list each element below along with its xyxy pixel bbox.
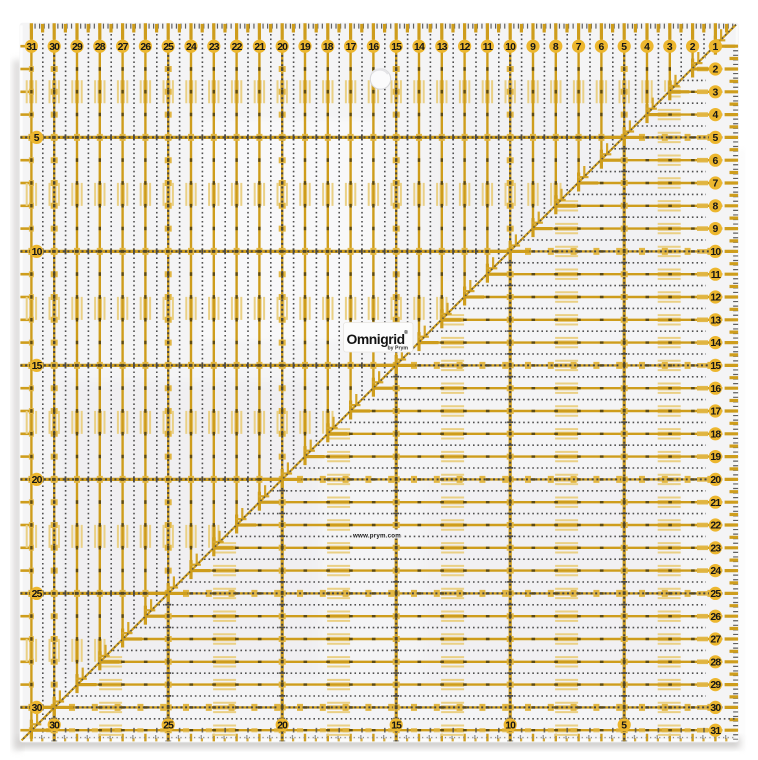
svg-text:9: 9 [713, 224, 719, 235]
svg-text:8: 8 [713, 201, 719, 212]
svg-text:28: 28 [710, 657, 721, 668]
svg-text:1: 1 [713, 42, 719, 53]
svg-text:29: 29 [710, 680, 721, 691]
svg-text:27: 27 [710, 635, 721, 646]
svg-text:26: 26 [140, 42, 151, 53]
svg-text:15: 15 [32, 361, 43, 372]
svg-text:2: 2 [690, 42, 696, 53]
svg-text:21: 21 [254, 42, 265, 53]
svg-text:16: 16 [710, 384, 721, 395]
svg-text:19: 19 [710, 452, 721, 463]
svg-text:25: 25 [710, 589, 721, 600]
svg-text:7: 7 [576, 42, 582, 53]
svg-text:28: 28 [95, 42, 106, 53]
svg-text:14: 14 [710, 338, 721, 349]
svg-text:30: 30 [32, 703, 43, 714]
svg-text:22: 22 [232, 42, 243, 53]
svg-text:20: 20 [277, 42, 288, 53]
svg-text:11: 11 [711, 270, 721, 281]
svg-text:7: 7 [713, 179, 719, 190]
svg-text:10: 10 [505, 720, 516, 731]
svg-text:25: 25 [163, 720, 174, 731]
svg-text:5: 5 [713, 133, 719, 144]
svg-text:30: 30 [710, 703, 721, 714]
svg-text:23: 23 [710, 543, 721, 554]
svg-text:15: 15 [391, 720, 402, 731]
svg-text:21: 21 [710, 498, 721, 509]
svg-text:17: 17 [710, 407, 721, 418]
svg-text:13: 13 [437, 42, 448, 53]
svg-text:12: 12 [460, 42, 471, 53]
svg-text:20: 20 [710, 475, 721, 486]
svg-text:30: 30 [49, 42, 60, 53]
svg-text:9: 9 [530, 42, 536, 53]
svg-text:20: 20 [32, 475, 43, 486]
svg-text:23: 23 [209, 42, 220, 53]
svg-text:18: 18 [710, 429, 721, 440]
svg-text:6: 6 [713, 156, 719, 167]
svg-text:8: 8 [553, 42, 559, 53]
svg-text:6: 6 [599, 42, 605, 53]
svg-text:3: 3 [667, 42, 673, 53]
svg-text:17: 17 [346, 42, 357, 53]
svg-text:29: 29 [72, 42, 83, 53]
svg-text:22: 22 [710, 521, 721, 532]
svg-text:10: 10 [32, 247, 43, 258]
svg-text:10: 10 [505, 42, 516, 53]
svg-text:5: 5 [621, 720, 627, 731]
svg-text:12: 12 [710, 293, 721, 304]
svg-text:2: 2 [713, 65, 719, 76]
svg-text:by Prym: by Prym [388, 345, 409, 351]
svg-text:13: 13 [710, 315, 721, 326]
svg-text:24: 24 [710, 566, 721, 577]
svg-text:24: 24 [186, 42, 197, 53]
svg-text:14: 14 [414, 42, 425, 53]
svg-text:16: 16 [368, 42, 379, 53]
svg-text:30: 30 [49, 720, 60, 731]
svg-text:4: 4 [644, 42, 650, 53]
svg-text:27: 27 [118, 42, 129, 53]
svg-text:11: 11 [483, 42, 493, 53]
svg-text:19: 19 [300, 42, 311, 53]
svg-text:®: ® [404, 329, 408, 336]
svg-text:5: 5 [34, 133, 40, 144]
svg-text:18: 18 [323, 42, 334, 53]
svg-text:20: 20 [277, 720, 288, 731]
svg-text:4: 4 [713, 110, 719, 121]
svg-text:25: 25 [163, 42, 174, 53]
svg-text:15: 15 [391, 42, 402, 53]
svg-text:26: 26 [710, 612, 721, 623]
svg-text:25: 25 [32, 589, 43, 600]
svg-text:5: 5 [621, 42, 627, 53]
svg-text:31: 31 [26, 42, 37, 53]
svg-text:3: 3 [713, 87, 719, 98]
svg-text:10: 10 [710, 247, 721, 258]
svg-text:15: 15 [710, 361, 721, 372]
svg-text:www.prym.com: www.prym.com [352, 533, 401, 540]
svg-text:31: 31 [710, 726, 721, 737]
